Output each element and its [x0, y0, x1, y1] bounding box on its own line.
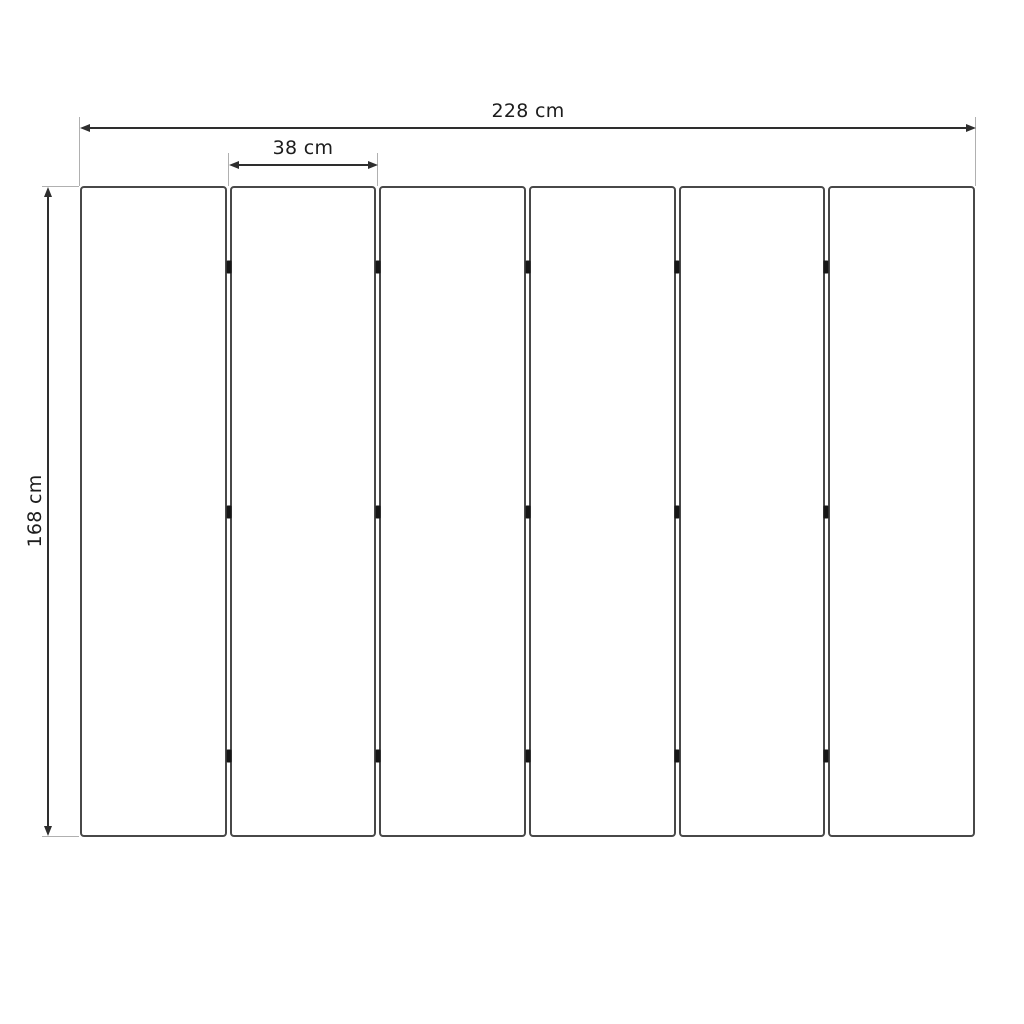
- panel-dimension-diagram: 228 cm 38 cm 168 cm: [0, 0, 1024, 1024]
- dimension-line-total-width: [88, 127, 968, 129]
- total-width-label: 228 cm: [491, 100, 564, 122]
- extension-line-bottom: [42, 836, 79, 837]
- arrowhead-right-icon: [368, 161, 378, 169]
- arrowhead-down-icon: [44, 826, 52, 836]
- arrowhead-left-icon: [229, 161, 239, 169]
- extension-line-left: [228, 153, 229, 186]
- arrowhead-left-icon: [80, 124, 90, 132]
- panel: [379, 186, 526, 837]
- panel: [529, 186, 676, 837]
- extension-line-right: [377, 153, 378, 186]
- arrowhead-up-icon: [44, 187, 52, 197]
- arrowhead-right-icon: [966, 124, 976, 132]
- dimension-line-height: [47, 195, 49, 828]
- panel: [230, 186, 377, 837]
- panel-width-label: 38 cm: [273, 137, 334, 159]
- panel: [80, 186, 227, 837]
- dimension-line-panel-width: [237, 164, 369, 166]
- panel: [679, 186, 826, 837]
- panel: [828, 186, 975, 837]
- panels-row: [80, 186, 975, 837]
- height-label: 168 cm: [24, 474, 46, 547]
